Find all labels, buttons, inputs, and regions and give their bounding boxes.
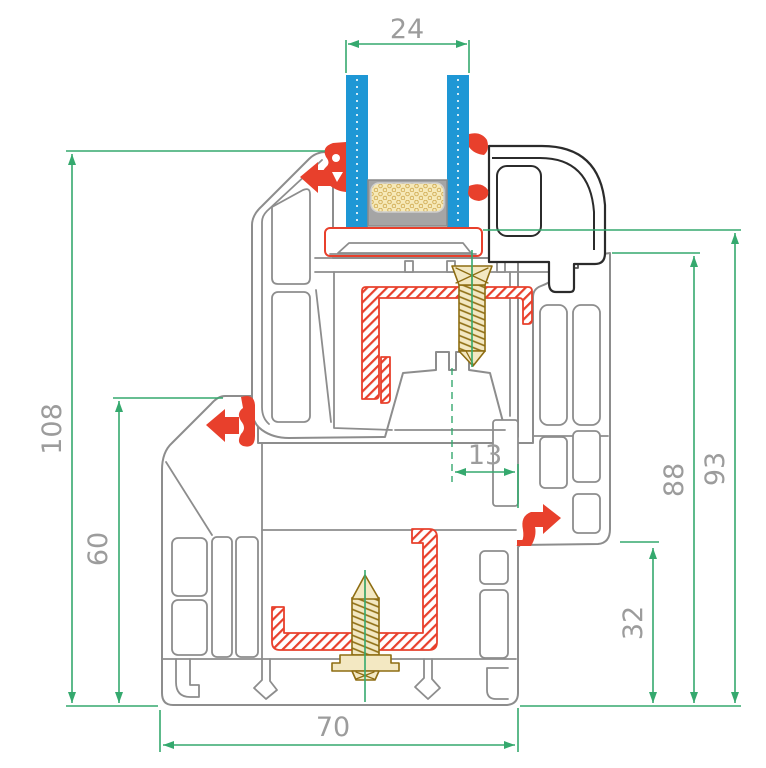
window-profile-cross-section: 24 108 60 13 88 93	[0, 0, 766, 768]
frame-chamber	[573, 494, 600, 533]
dimension-label: 88	[659, 463, 690, 497]
dimension-label: 32	[618, 606, 649, 640]
frame-chamber	[540, 437, 567, 488]
dimension-label: 70	[316, 712, 350, 743]
cross-section-drawing: 24 108 60 13 88 93	[0, 0, 766, 768]
packer-outline	[325, 228, 482, 256]
reinforcement-hook	[381, 357, 390, 403]
gasket-frame-inner-foot	[517, 540, 531, 546]
gasket-counter	[332, 154, 340, 162]
frame-chamber	[573, 431, 600, 482]
sash-chamber	[272, 292, 310, 422]
sash-chamber	[272, 189, 310, 284]
dimension-label: 60	[83, 532, 114, 566]
dimension-label: 24	[390, 14, 424, 45]
frame-chamber	[480, 590, 508, 658]
glazing-packer	[325, 228, 482, 256]
dimension-label: 108	[37, 403, 68, 455]
frame-chamber	[172, 600, 207, 655]
frame-chamber	[540, 305, 567, 425]
frame-chamber	[480, 551, 508, 584]
frame-chamber	[236, 537, 258, 657]
frame-chamber	[573, 305, 600, 425]
frame-chamber	[172, 538, 207, 596]
dimension-label: 13	[468, 440, 502, 471]
shelf-drain	[405, 261, 413, 272]
frame-chamber	[212, 537, 232, 657]
dimension-label: 93	[700, 452, 731, 486]
desiccant	[371, 183, 444, 212]
